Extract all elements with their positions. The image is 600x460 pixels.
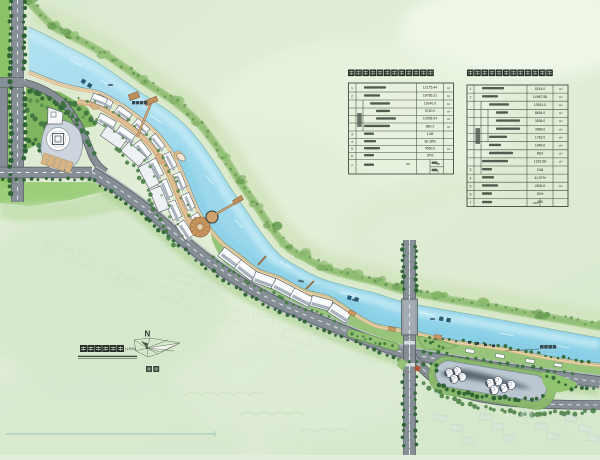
svg-text:8694.0: 8694.0 [535,111,545,115]
svg-text:132: 132 [533,201,538,205]
svg-text:9740.0: 9740.0 [425,109,435,113]
svg-text:m²: m² [447,86,451,90]
svg-text:1: 1 [470,87,472,91]
svg-text:m²: m² [559,184,563,188]
svg-text:m²: m² [447,102,451,106]
svg-text:14967.98: 14967.98 [533,95,547,99]
svg-text:m²: m² [447,109,451,113]
svg-text:25%: 25% [427,154,434,158]
svg-text:6: 6 [470,193,472,197]
svg-text:19140.0: 19140.0 [424,102,436,106]
svg-text:450: 450 [537,200,543,204]
svg-text:96: 96 [406,162,410,166]
svg-text:12175.44: 12175.44 [423,86,437,90]
svg-text:38.38%: 38.38% [424,140,436,144]
svg-text:4: 4 [351,140,353,144]
svg-text:2: 2 [470,95,472,99]
svg-text:4590.0: 4590.0 [425,147,435,151]
svg-text:880.2: 880.2 [426,125,435,129]
svg-text:98.0: 98.0 [537,152,544,156]
svg-text:(1:500): (1:500) [125,347,136,351]
svg-text:m²: m² [447,147,451,151]
svg-text:m²: m² [447,94,451,98]
svg-text:2605.0: 2605.0 [535,184,545,188]
svg-text:5214.0: 5214.0 [535,87,545,91]
svg-text:m²: m² [559,87,563,91]
svg-text:1216.98: 1216.98 [534,160,546,164]
svg-text:3: 3 [470,168,472,172]
svg-text:1: 1 [351,86,353,90]
svg-text:3: 3 [351,133,353,137]
svg-text:m²: m² [559,152,563,156]
svg-text:m²: m² [447,125,451,129]
svg-text:1946.0: 1946.0 [535,144,545,148]
svg-text:N: N [145,330,151,339]
svg-text:m²: m² [447,117,451,121]
svg-text:18766.21: 18766.21 [423,94,437,98]
svg-text:6: 6 [351,154,353,158]
svg-text:2: 2 [351,94,353,98]
svg-text:10096.04: 10096.04 [423,117,437,121]
svg-text:7: 7 [470,201,472,205]
svg-text:41.97%: 41.97% [534,176,546,180]
svg-text:2.56: 2.56 [537,168,544,172]
svg-text:4: 4 [470,176,472,180]
svg-text:25%: 25% [537,192,544,196]
svg-text:m²: m² [559,160,563,164]
svg-text:m²: m² [559,127,563,131]
svg-text:m²: m² [559,95,563,99]
svg-text:1.58: 1.58 [427,132,434,136]
svg-text:m²: m² [559,103,563,107]
svg-text:5: 5 [470,184,472,188]
svg-text:5: 5 [351,147,353,151]
svg-text:m²: m² [559,144,563,148]
svg-text:3968.0: 3968.0 [535,127,545,131]
svg-text:1782.0: 1782.0 [535,135,545,139]
svg-text:m²: m² [559,119,563,123]
svg-text:3536.0: 3536.0 [535,119,545,123]
svg-text:m²: m² [559,135,563,139]
svg-text:7: 7 [351,164,353,168]
svg-text:13931.0: 13931.0 [534,103,546,107]
svg-text:m²: m² [559,111,563,115]
